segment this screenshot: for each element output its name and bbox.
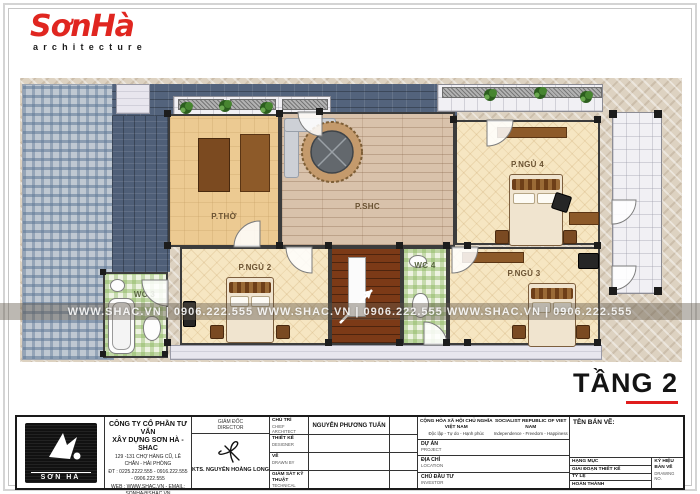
role-row: CHỦ TRÌCHIEF ARCHITECT NGUYỄN PHƯƠNG TUẤ… (270, 417, 417, 435)
altar-cabinet (240, 134, 270, 192)
company-address: 129 -131 CHỢ HÀNG CŨ, LÊ CHÂN - HẢI PHÒN… (108, 454, 188, 468)
balcony-right (612, 112, 662, 294)
balcony-top-right (437, 84, 603, 112)
tv-cabinet (578, 253, 599, 269)
drawing-row: HOÀN THÀNH (570, 481, 651, 488)
brand-logo: SơnHà architecture (30, 12, 147, 52)
room-label-bedroom4: P.NGỦ 4 (457, 160, 598, 169)
room-bedroom3: P.NGỦ 3 (448, 247, 600, 345)
room-bedroom4: P.NGỦ 4 (455, 120, 600, 245)
floor-title-underline (626, 401, 678, 404)
nightstand (495, 230, 509, 244)
company-phone: ĐT : 0225.2222.555 - 0916.222.555 - 0906… (108, 469, 188, 483)
room-label-worship: P.THỜ (170, 212, 278, 221)
room-label-wc3: WC 3 (105, 290, 166, 299)
pillow (513, 193, 535, 204)
role-label-en: DRAWN BY (272, 460, 306, 465)
sonha-logo-glyph (25, 423, 97, 469)
role-label-en: TECHNICAL SUPERVISOR (272, 483, 306, 488)
director-name: KTS. NGUYỄN HOÀNG LONG (192, 467, 269, 473)
watermark-text: WWW.SHAC.VN | 0906.222.555 WWW.SHAC.VN |… (68, 306, 633, 318)
planter-box (230, 99, 276, 110)
director-cell: GIÁM ĐỐC DIRECTOR KTS. NGUYỄN HOÀNG LONG (192, 417, 270, 488)
project-label-en: LOCATION (421, 463, 566, 468)
role-extra-cell (390, 471, 417, 488)
brand-tagline: architecture (30, 42, 147, 52)
company-web: WEB : WWW.SHAC.VN - EMAIL: SONHA@SHAC.VN (108, 484, 188, 494)
director-label-en: DIRECTOR (192, 425, 269, 431)
bed-runner (229, 282, 271, 293)
drawing-code-label-vi: KÝ HIỆU BẢN VẼ (654, 459, 681, 471)
company-name-line1: CÔNG TY CỔ PHẦN TƯ VẤN (108, 421, 188, 437)
walkway-strip (116, 84, 150, 114)
role-value: NGUYỄN PHƯƠNG TUẤN (309, 417, 390, 434)
room-label-living: P.SHC (282, 202, 453, 211)
role-row: THIẾT KẾDESIGNER (270, 435, 417, 453)
company-logo-cell: SƠN HÀ (17, 417, 105, 488)
room-label-wc4: WC 4 (404, 261, 446, 270)
nightstand (563, 230, 577, 244)
title-block: SƠN HÀ CÔNG TY CỔ PHẦN TƯ VẤN XÂY DỰNG S… (15, 415, 685, 490)
planter-box (178, 99, 224, 110)
role-value (309, 471, 390, 488)
project-row: ĐỊA CHỈ LOCATION (418, 456, 569, 473)
watermark-band: WWW.SHAC.VN | 0906.222.555 WWW.SHAC.VN |… (0, 303, 700, 320)
desk (569, 212, 599, 225)
republic-header: CỘNG HÒA XÃ HỘI CHỦ NGHĨA VIỆT NAM Độc l… (418, 417, 569, 440)
terrace-bottom (170, 345, 602, 360)
company-name-line2: XÂY DỰNG SƠN HÀ - SHAC (108, 437, 188, 453)
nightstand (576, 325, 590, 339)
room-label-bedroom2: P.NGỦ 2 (182, 263, 328, 272)
roles-table: CHỦ TRÌCHIEF ARCHITECT NGUYỄN PHƯƠNG TUẤ… (270, 417, 418, 488)
republic-vi-line2: Độc lập - Tự do - Hạnh phúc (419, 431, 494, 437)
role-label-en: DESIGNER (272, 442, 306, 447)
project-row: DỰ ÁN PROJECT (418, 440, 569, 457)
role-row: GIÁM SÁT KỸ THUẬTTECHNICAL SUPERVISOR (270, 471, 417, 488)
drawing-row: TỶ LỆ (570, 474, 651, 482)
role-extra-cell (390, 417, 417, 434)
room-living: P.SHC (280, 112, 455, 247)
planter-box (442, 87, 602, 98)
nightstand (276, 325, 290, 339)
republic-en-line2: Independence - Freedom - Happiness (494, 431, 569, 437)
drawing-row: HẠNG MỤC (570, 458, 651, 466)
role-extra-cell (390, 435, 417, 452)
room-worship: P.THỜ (168, 114, 280, 247)
bed-runner (512, 179, 560, 190)
staircase (330, 247, 402, 345)
drawing-title-label: TÊN BẢN VẼ: (570, 417, 683, 458)
floor-title: TẦNG 2 (573, 368, 678, 399)
nightstand (210, 325, 224, 339)
role-extra-cell (390, 453, 417, 470)
project-label-en: PROJECT (421, 447, 566, 452)
sofa-horizontal (284, 118, 336, 132)
project-label-en: INVESTOR (421, 480, 566, 485)
role-value (309, 435, 390, 452)
role-value (309, 453, 390, 470)
company-info-cell: CÔNG TY CỔ PHẦN TƯ VẤN XÂY DỰNG SƠN HÀ -… (105, 417, 192, 488)
role-row: VẼDRAWN BY (270, 453, 417, 471)
room-bedroom2: P.NGỦ 2 (180, 247, 330, 345)
planter-box (282, 99, 328, 110)
drawing-code-label-en: DRAWING NO. (654, 471, 681, 481)
bed (509, 174, 563, 246)
room-wc4: WC 4 (402, 247, 448, 345)
altar-table (198, 138, 230, 192)
dresser (462, 252, 524, 263)
republic-vi-line1: CỘNG HÒA XÃ HỘI CHỦ NGHĨA VIỆT NAM (419, 419, 494, 431)
republic-en-line1: SOCIALIST REPUBLIC OF VIET NAM (494, 419, 569, 431)
dresser (497, 127, 567, 138)
director-label: GIÁM ĐỐC DIRECTOR (192, 417, 269, 434)
signature (209, 436, 253, 466)
role-label-vi: GIÁM SÁT KỸ THUẬT (272, 472, 306, 483)
nightstand (512, 325, 526, 339)
drawing-sheet: SơnHà architecture P.THỜ P.SHC (0, 0, 700, 494)
bed-runner (531, 288, 573, 299)
drawing-name-section: TÊN BẢN VẼ: HẠNG MỤC GIAI ĐOẠN THIẾT KẾ … (570, 417, 683, 488)
drawing-code-cell: KÝ HIỆU BẢN VẼ DRAWING NO. (652, 458, 683, 488)
role-label-en: CHIEF ARCHITECT (272, 424, 306, 434)
republic-section: CỘNG HÒA XÃ HỘI CHỦ NGHĨA VIỆT NAM Độc l… (418, 417, 570, 488)
room-label-bedroom3: P.NGỦ 3 (450, 269, 598, 278)
project-row: CHỦ ĐẦU TƯ INVESTOR (418, 473, 569, 489)
sonha-logo: SƠN HÀ (25, 423, 97, 483)
brand-name: SơnHà (30, 12, 147, 42)
sonha-logo-text: SƠN HÀ (31, 472, 91, 481)
drawing-row: GIAI ĐOẠN THIẾT KẾ (570, 466, 651, 474)
